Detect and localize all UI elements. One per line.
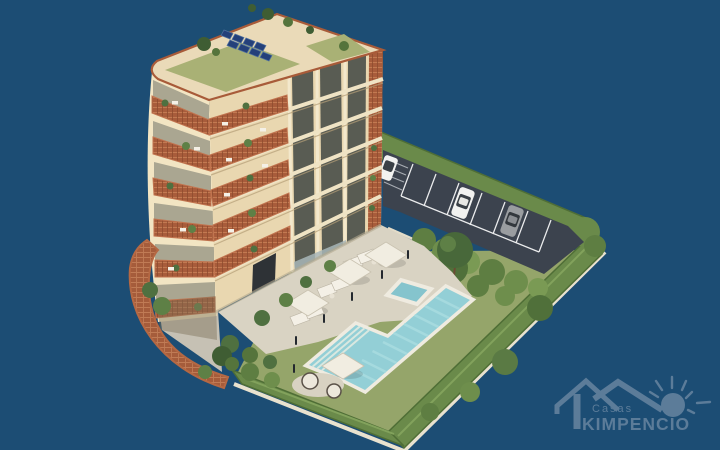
round-daybed — [327, 384, 341, 398]
parking-hedge-corner — [584, 235, 606, 257]
scene-canvas: Casas KIMPENCIO — [0, 0, 720, 450]
tree — [437, 232, 473, 268]
side-table — [330, 294, 335, 299]
logo-text-kimpencio: KIMPENCIO — [582, 414, 690, 434]
architectural-render: Casas KIMPENCIO — [0, 0, 720, 450]
round-daybed — [302, 373, 318, 389]
